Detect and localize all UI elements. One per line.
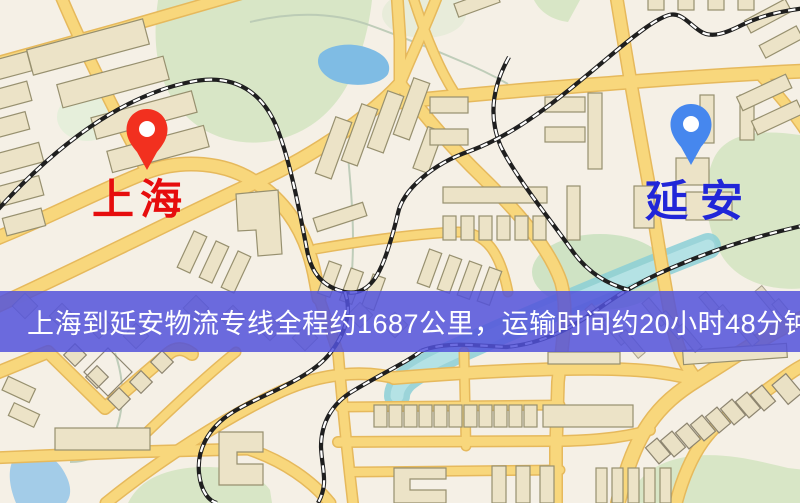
map-view: 上海 延安 上海到延安物流专线全程约1687公里，运输时间约20小时48分钟.	[0, 0, 800, 503]
destination-label: 延安	[645, 181, 755, 224]
route-info-text: 上海到延安物流专线全程约1687公里，运输时间约20小时48分钟.	[0, 302, 800, 341]
route-info-banner: 上海到延安物流专线全程约1687公里，运输时间约20小时48分钟.	[0, 291, 800, 352]
destination-pin-icon[interactable]	[668, 103, 714, 167]
origin-label: 上海	[92, 179, 188, 221]
origin-pin-icon[interactable]	[124, 108, 170, 172]
map-canvas	[0, 0, 800, 503]
